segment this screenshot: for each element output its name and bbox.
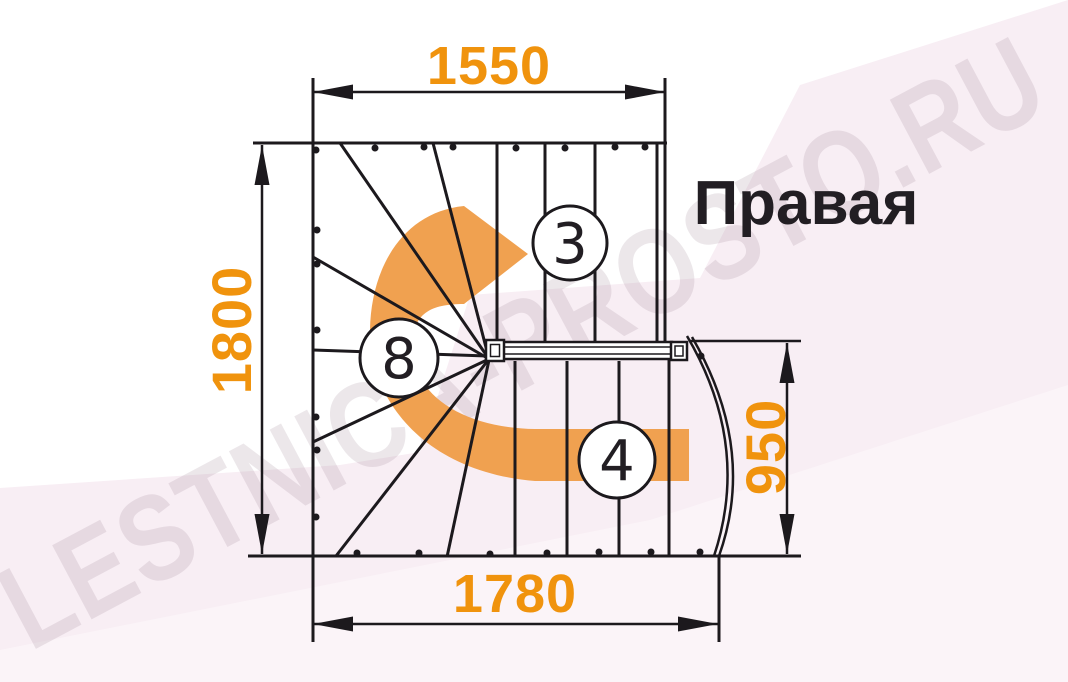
wall-dot bbox=[612, 144, 619, 151]
page-title: Правая bbox=[694, 169, 919, 238]
newel-post-right-inner bbox=[675, 346, 683, 356]
wall-dot bbox=[596, 549, 603, 556]
top-flight-count: 3 bbox=[552, 212, 588, 277]
wall-dot bbox=[313, 147, 320, 154]
stair-plan-page: LESTNICA-PROSTO.RU bbox=[0, 0, 1068, 682]
wall-dot bbox=[313, 514, 320, 521]
dimension-bottom-value: 1780 bbox=[453, 564, 577, 624]
wall-dot bbox=[416, 550, 423, 557]
wall-dot bbox=[544, 550, 551, 557]
wall-dot bbox=[421, 144, 428, 151]
wall-dot bbox=[313, 414, 320, 421]
winder-count: 8 bbox=[381, 327, 417, 392]
wall-dot bbox=[314, 261, 321, 268]
wall-dot bbox=[314, 227, 321, 234]
dimension-right-value: 950 bbox=[734, 399, 797, 495]
wall-dot bbox=[562, 145, 569, 152]
dimension-top-value: 1550 bbox=[427, 36, 551, 96]
newel-post-left-inner bbox=[491, 345, 500, 357]
wall-dot bbox=[648, 549, 655, 556]
wall-dot bbox=[642, 144, 649, 151]
wall-dot bbox=[698, 353, 705, 360]
wall-dot bbox=[314, 327, 321, 334]
bottom-flight-count: 4 bbox=[599, 429, 635, 494]
wall-dot bbox=[314, 447, 321, 454]
wall-dot bbox=[354, 550, 361, 557]
landing-board bbox=[486, 340, 687, 361]
dimension-left-value: 1800 bbox=[200, 266, 263, 395]
wall-dot bbox=[487, 551, 494, 558]
wall-dot bbox=[513, 145, 520, 152]
wall-dot bbox=[450, 144, 457, 151]
wall-dot bbox=[372, 145, 379, 152]
wall-dot bbox=[697, 549, 704, 556]
landing-board-body bbox=[503, 342, 672, 359]
stair-diagram: LESTNICA-PROSTO.RU bbox=[0, 0, 1068, 682]
